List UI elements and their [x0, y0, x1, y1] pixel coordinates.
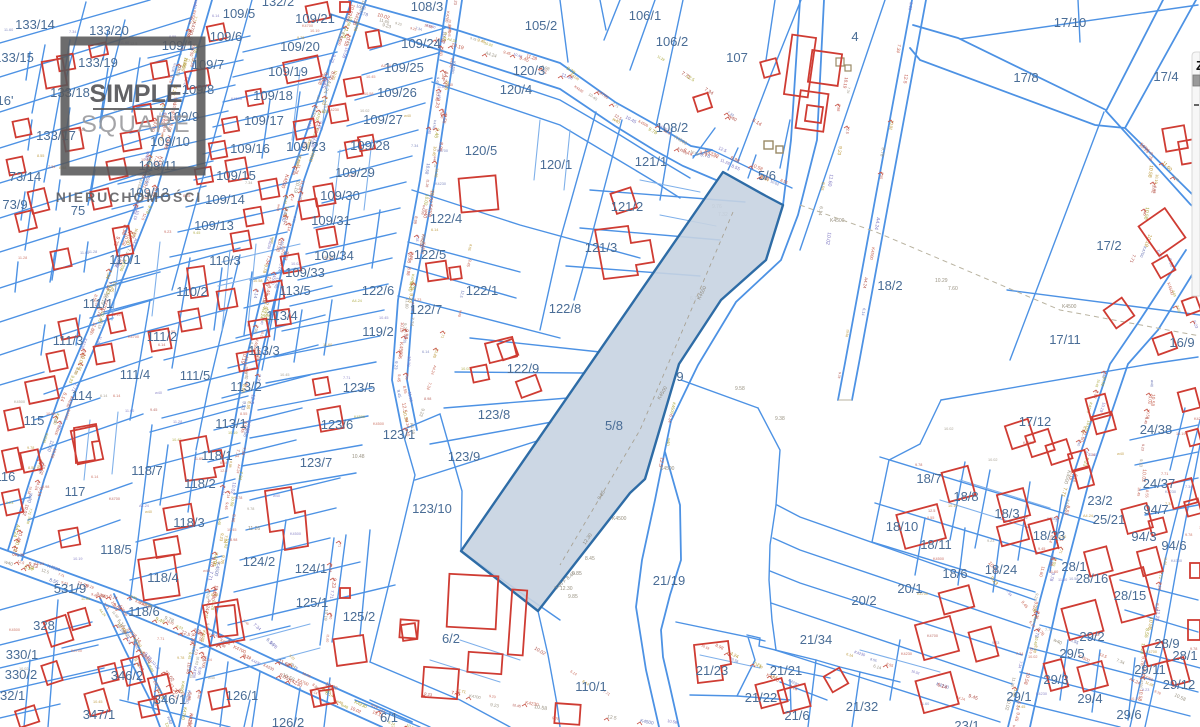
svg-text:K4500: K4500: [933, 557, 944, 561]
svg-text:109/25: 109/25: [384, 60, 424, 75]
svg-text:18/8: 18/8: [953, 489, 978, 504]
svg-text:10.45: 10.45: [227, 528, 237, 532]
svg-text:10.19: 10.19: [310, 29, 320, 33]
svg-text:7.71: 7.71: [329, 590, 335, 600]
svg-text:w40: w40: [1117, 452, 1124, 456]
svg-text:A4.24: A4.24: [34, 562, 44, 566]
svg-text:10.58: 10.58: [364, 92, 374, 96]
svg-text:120/4: 120/4: [500, 82, 533, 97]
svg-text:23/1: 23/1: [954, 718, 979, 727]
svg-text:K4700: K4700: [71, 649, 82, 653]
svg-text:330/2: 330/2: [5, 667, 38, 682]
svg-text:A4.24: A4.24: [1083, 514, 1093, 518]
svg-text:10.48: 10.48: [352, 454, 365, 460]
svg-text:9.23: 9.23: [393, 361, 399, 370]
svg-text:NIERUCHOMOŚCI: NIERUCHOMOŚCI: [56, 188, 203, 205]
svg-text:21/19: 21/19: [653, 573, 686, 588]
svg-text:118/1: 118/1: [201, 448, 233, 463]
svg-text:21/22: 21/22: [745, 690, 778, 705]
svg-text:116: 116: [0, 469, 15, 484]
svg-text:6.14: 6.14: [431, 228, 438, 232]
svg-text:113/1: 113/1: [215, 416, 247, 431]
svg-text:8.98: 8.98: [42, 485, 49, 489]
svg-text:117: 117: [65, 484, 86, 499]
svg-text:106/1: 106/1: [629, 8, 662, 23]
svg-text:5/8: 5/8: [605, 418, 623, 433]
svg-text:11.60: 11.60: [4, 28, 13, 32]
svg-text:6.14: 6.14: [100, 394, 107, 398]
svg-text:29/1: 29/1: [1006, 689, 1031, 704]
svg-text:10.19: 10.19: [948, 504, 958, 508]
svg-text:A4.24: A4.24: [202, 658, 212, 662]
svg-text:110/2: 110/2: [176, 284, 208, 299]
svg-text:94/3: 94/3: [1131, 529, 1156, 544]
svg-text:109/16: 109/16: [230, 141, 270, 156]
svg-text:133/15: 133/15: [0, 50, 34, 65]
svg-text:K4500: K4500: [660, 466, 675, 472]
svg-text:18/3: 18/3: [994, 506, 1019, 521]
svg-text:109/14: 109/14: [205, 192, 245, 207]
svg-text:125/1: 125/1: [296, 595, 329, 610]
svg-text:123/6: 123/6: [321, 417, 354, 432]
svg-text:109/13: 109/13: [194, 218, 234, 233]
svg-text:8.98: 8.98: [230, 538, 237, 542]
svg-text:4: 4: [851, 29, 858, 44]
svg-text:111/2: 111/2: [147, 329, 178, 344]
svg-text:10.58: 10.58: [253, 279, 263, 283]
svg-text:21/34: 21/34: [800, 632, 833, 647]
svg-text:9.23: 9.23: [987, 539, 994, 543]
svg-text:124/1: 124/1: [295, 561, 328, 576]
svg-text:9.23: 9.23: [164, 230, 171, 234]
svg-text:132/2: 132/2: [262, 0, 295, 9]
svg-text:9.23: 9.23: [1142, 688, 1149, 692]
svg-text:73/9: 73/9: [2, 197, 27, 212]
svg-text:110/1: 110/1: [109, 252, 141, 267]
svg-text:K4500: K4500: [9, 628, 20, 632]
svg-text:9.78: 9.78: [177, 656, 184, 660]
svg-text:K4500: K4500: [373, 422, 384, 426]
svg-text:17/12: 17/12: [1019, 414, 1052, 429]
svg-text:111/3: 111/3: [53, 333, 84, 348]
svg-text:8.55: 8.55: [37, 154, 44, 158]
svg-text:110/3: 110/3: [209, 253, 241, 268]
svg-text:110/1: 110/1: [575, 679, 607, 694]
svg-text:11.28: 11.28: [88, 250, 97, 254]
svg-text:328: 328: [33, 618, 55, 633]
svg-text:123/1: 123/1: [383, 427, 416, 442]
svg-text:9.23: 9.23: [6, 501, 13, 505]
svg-text:7.71: 7.71: [157, 637, 164, 641]
svg-text:18/24: 18/24: [985, 562, 1018, 577]
svg-text:w40: w40: [203, 569, 210, 573]
svg-text:10.45: 10.45: [379, 316, 389, 320]
svg-text:122/6: 122/6: [362, 283, 395, 298]
svg-text:12.5: 12.5: [928, 509, 935, 513]
svg-text:9.58: 9.58: [735, 386, 745, 392]
svg-text:29/5: 29/5: [1059, 646, 1084, 661]
svg-text:9.78: 9.78: [915, 463, 922, 467]
svg-text:9.45: 9.45: [396, 374, 402, 383]
svg-text:109/24: 109/24: [401, 36, 441, 51]
svg-text:6.14: 6.14: [422, 350, 429, 354]
svg-text:109/29: 109/29: [335, 165, 375, 180]
svg-text:24/37: 24/37: [1143, 476, 1176, 491]
svg-text:7.34: 7.34: [409, 317, 415, 327]
svg-text:94/7: 94/7: [1143, 502, 1168, 517]
svg-text:K4500: K4500: [231, 97, 242, 101]
svg-text:6.14: 6.14: [91, 475, 98, 479]
svg-text:94/6: 94/6: [1161, 538, 1186, 553]
svg-text:133/18: 133/18: [50, 85, 90, 100]
svg-text:122/8: 122/8: [549, 301, 582, 316]
svg-text:109/18: 109/18: [253, 88, 293, 103]
svg-text:28/16: 28/16: [1076, 571, 1109, 586]
svg-text:124/2: 124/2: [243, 554, 276, 569]
svg-text:w40: w40: [208, 676, 215, 680]
svg-text:18/10: 18/10: [886, 519, 919, 534]
svg-text:109/5: 109/5: [223, 6, 256, 21]
svg-text:10.45: 10.45: [280, 373, 290, 377]
svg-text:7.34: 7.34: [411, 144, 418, 148]
svg-text:332/1: 332/1: [0, 688, 25, 703]
svg-text:29/12: 29/12: [1163, 677, 1196, 692]
svg-text:K4230: K4230: [901, 652, 912, 656]
svg-text:6.14: 6.14: [440, 112, 447, 116]
svg-text:118/6: 118/6: [128, 604, 160, 619]
svg-text:73/14: 73/14: [9, 169, 42, 184]
svg-text:111/5: 111/5: [180, 368, 211, 383]
svg-text:118/3: 118/3: [173, 515, 205, 530]
svg-text:122/1: 122/1: [466, 283, 499, 298]
svg-text:109/6: 109/6: [210, 29, 243, 44]
svg-text:7.71: 7.71: [1045, 628, 1052, 632]
svg-text:121/3: 121/3: [585, 240, 618, 255]
svg-text:23/2: 23/2: [1087, 493, 1112, 508]
svg-text:9.38: 9.38: [775, 416, 785, 422]
svg-text:21/32: 21/32: [846, 699, 879, 714]
svg-text:A4.24: A4.24: [352, 299, 362, 303]
svg-text:109/15: 109/15: [216, 168, 256, 183]
svg-text:330/1: 330/1: [6, 647, 39, 662]
svg-text:113/5: 113/5: [279, 283, 311, 298]
svg-text:21/21: 21/21: [770, 663, 803, 678]
svg-text:10.02: 10.02: [461, 367, 471, 371]
svg-text:9: 9: [676, 369, 683, 384]
svg-text:123/8: 123/8: [478, 407, 511, 422]
svg-text:113/3: 113/3: [248, 343, 280, 358]
svg-text:K4500: K4500: [290, 532, 301, 536]
svg-text:109/23: 109/23: [286, 139, 326, 154]
svg-text:18/23: 18/23: [1033, 528, 1066, 543]
svg-text:9.45: 9.45: [1038, 547, 1045, 551]
svg-text:20/2: 20/2: [851, 593, 876, 608]
svg-text:K4700: K4700: [109, 497, 120, 501]
svg-text:111/4: 111/4: [120, 367, 151, 382]
svg-text:16/9: 16/9: [1169, 335, 1194, 350]
svg-text:10.19: 10.19: [228, 431, 238, 435]
svg-text:11.60: 11.60: [1049, 570, 1058, 574]
svg-text:7.34: 7.34: [1185, 485, 1192, 489]
svg-text:12.5: 12.5: [220, 469, 227, 473]
svg-text:w40: w40: [446, 83, 453, 87]
svg-text:75: 75: [71, 203, 85, 218]
svg-text:21/23: 21/23: [696, 663, 729, 678]
svg-text:6/2: 6/2: [442, 631, 460, 646]
svg-text:8.98: 8.98: [211, 593, 218, 597]
svg-text:10.45: 10.45: [366, 75, 376, 79]
svg-text:9.23: 9.23: [1141, 444, 1145, 451]
svg-text:106/2: 106/2: [656, 34, 689, 49]
svg-text:18/7: 18/7: [916, 471, 941, 486]
svg-text:K4500: K4500: [612, 516, 627, 522]
svg-text:18/6: 18/6: [942, 566, 967, 581]
svg-text:109/26: 109/26: [377, 85, 417, 100]
svg-text:122/4: 122/4: [430, 211, 463, 226]
svg-text:531/9: 531/9: [54, 581, 87, 596]
svg-text:8.55: 8.55: [322, 110, 329, 114]
svg-text:122/9: 122/9: [507, 361, 540, 376]
svg-text:118/2: 118/2: [184, 476, 216, 491]
svg-text:8.98: 8.98: [424, 397, 431, 401]
svg-text:11.60: 11.60: [1058, 578, 1067, 582]
svg-text:9.23: 9.23: [451, 0, 458, 1]
svg-text:10.45: 10.45: [1136, 487, 1141, 496]
svg-text:346/2: 346/2: [111, 668, 144, 683]
svg-text:115: 115: [24, 413, 45, 428]
svg-text:11.28: 11.28: [173, 420, 182, 424]
svg-text:9.78: 9.78: [1185, 533, 1192, 537]
svg-text:K4700: K4700: [1171, 559, 1182, 563]
svg-text:11.60: 11.60: [125, 409, 134, 413]
svg-text:SQUARE: SQUARE: [81, 111, 191, 138]
svg-text:7.60: 7.60: [948, 286, 958, 292]
svg-text:109/20: 109/20: [280, 39, 320, 54]
svg-text:17/11: 17/11: [1049, 332, 1081, 347]
svg-text:9.78: 9.78: [247, 507, 254, 511]
svg-text:10.29: 10.29: [935, 278, 948, 284]
svg-text:107: 107: [726, 50, 748, 65]
svg-text:Z: Z: [1196, 58, 1200, 73]
svg-text:109/19: 109/19: [268, 64, 308, 79]
svg-text:346/1: 346/1: [154, 692, 187, 707]
svg-text:123/7: 123/7: [300, 455, 333, 470]
svg-text:24/38: 24/38: [1140, 422, 1173, 437]
svg-text:17/4: 17/4: [1153, 69, 1178, 84]
svg-text:10.45: 10.45: [93, 700, 103, 704]
svg-text:120/3: 120/3: [513, 63, 546, 78]
svg-text:10.58: 10.58: [46, 412, 56, 416]
svg-text:121/1: 121/1: [635, 154, 668, 169]
svg-text:10.19: 10.19: [1130, 697, 1140, 701]
svg-text:K4500: K4500: [1062, 304, 1077, 310]
svg-text:18/2: 18/2: [877, 278, 902, 293]
svg-text:21/6: 21/6: [784, 708, 809, 723]
svg-text:133/14: 133/14: [15, 17, 55, 32]
svg-text:w40: w40: [145, 510, 152, 514]
svg-text:K4500: K4500: [354, 415, 365, 419]
svg-text:7.34: 7.34: [1016, 652, 1023, 656]
svg-text:17/8: 17/8: [1013, 70, 1038, 85]
svg-text:K4230: K4230: [435, 182, 446, 186]
svg-text:29/6: 29/6: [1116, 707, 1141, 722]
svg-text:16': 16': [0, 93, 13, 108]
svg-text:109/27: 109/27: [363, 112, 403, 127]
svg-text:126/1: 126/1: [226, 688, 259, 703]
svg-text:20/1: 20/1: [897, 581, 922, 596]
svg-text:120/1: 120/1: [540, 157, 573, 172]
svg-text:10.19: 10.19: [1176, 432, 1186, 436]
svg-text:123/5: 123/5: [343, 380, 376, 395]
svg-text:109/28: 109/28: [350, 138, 390, 153]
svg-text:113/4: 113/4: [266, 308, 298, 323]
svg-text:25/21: 25/21: [1093, 512, 1126, 527]
svg-text:109/17: 109/17: [244, 113, 284, 128]
svg-text:11.60: 11.60: [80, 251, 89, 255]
svg-text:9.23: 9.23: [1138, 459, 1144, 468]
svg-text:6/1: 6/1: [380, 710, 398, 725]
svg-text:5/6: 5/6: [758, 168, 776, 183]
svg-text:133/19: 133/19: [78, 55, 118, 70]
svg-text:17/10: 17/10: [1054, 15, 1087, 30]
svg-text:10.02: 10.02: [944, 427, 954, 431]
svg-text:9.45: 9.45: [1018, 705, 1025, 709]
svg-text:10.19: 10.19: [406, 356, 412, 367]
svg-text:11.60: 11.60: [437, 85, 446, 89]
svg-text:11.26: 11.26: [248, 526, 260, 532]
svg-text:11.28: 11.28: [15, 553, 24, 557]
svg-text:12.5: 12.5: [213, 561, 220, 565]
svg-text:109/21: 109/21: [295, 11, 335, 26]
svg-text:114: 114: [72, 388, 93, 403]
svg-text:6.14: 6.14: [113, 394, 120, 398]
svg-text:w40: w40: [404, 114, 411, 118]
svg-text:126/2: 126/2: [272, 715, 305, 727]
svg-text:120/5: 120/5: [465, 143, 498, 158]
svg-text:SIMPLE: SIMPLE: [89, 80, 182, 108]
svg-text:122/7: 122/7: [410, 302, 443, 317]
svg-text:123/10: 123/10: [412, 501, 452, 516]
svg-text:8.55: 8.55: [28, 466, 35, 470]
svg-text:347/1: 347/1: [83, 707, 116, 722]
svg-text:118/5: 118/5: [100, 542, 132, 557]
svg-text:6.14: 6.14: [212, 14, 219, 18]
svg-text:10.19: 10.19: [73, 557, 83, 561]
svg-text:28/15: 28/15: [1114, 588, 1147, 603]
svg-text:133/20: 133/20: [89, 23, 129, 38]
svg-text:K4700: K4700: [128, 335, 139, 339]
svg-text:133/17: 133/17: [36, 128, 76, 143]
svg-text:108/3: 108/3: [411, 0, 444, 14]
svg-text:K4500: K4500: [830, 218, 845, 224]
svg-text:7.34: 7.34: [48, 165, 55, 169]
svg-text:8.55: 8.55: [1144, 490, 1150, 498]
svg-text:122/5: 122/5: [414, 247, 447, 262]
svg-text:17/2: 17/2: [1096, 238, 1121, 253]
svg-text:11.28: 11.28: [18, 256, 27, 260]
svg-text:29/3: 29/3: [1043, 672, 1068, 687]
svg-text:w40: w40: [273, 494, 280, 498]
svg-text:118/4: 118/4: [147, 570, 179, 585]
svg-text:10.02: 10.02: [1028, 655, 1038, 659]
svg-text:29/4: 29/4: [1077, 691, 1102, 706]
svg-text:11.60: 11.60: [81, 597, 90, 601]
svg-text:109/34: 109/34: [314, 248, 354, 263]
svg-text:9.85: 9.85: [568, 594, 578, 600]
svg-text:A4.24: A4.24: [139, 504, 149, 508]
svg-text:K4230: K4230: [1036, 692, 1047, 696]
svg-text:108/2: 108/2: [656, 120, 689, 135]
svg-text:118/7: 118/7: [131, 463, 163, 478]
svg-text:w40: w40: [155, 391, 162, 395]
svg-text:K4700: K4700: [927, 634, 938, 638]
svg-text:8.55: 8.55: [927, 516, 934, 520]
svg-text:10.58: 10.58: [1149, 394, 1156, 407]
svg-text:K4700: K4700: [437, 149, 448, 153]
svg-text:109/30: 109/30: [320, 188, 360, 203]
svg-text:105/2: 105/2: [525, 18, 558, 33]
svg-text:113/2: 113/2: [230, 379, 262, 394]
svg-text:9.78: 9.78: [235, 496, 242, 500]
svg-text:11.60: 11.60: [1088, 453, 1097, 457]
svg-text:125/2: 125/2: [343, 609, 376, 624]
svg-text:9.45: 9.45: [150, 408, 157, 412]
svg-text:29/11: 29/11: [1134, 662, 1166, 677]
svg-text:121/2: 121/2: [611, 199, 644, 214]
svg-text:18/11: 18/11: [920, 537, 952, 552]
svg-text:7.34: 7.34: [69, 30, 76, 34]
svg-text:K4230: K4230: [1194, 417, 1200, 421]
svg-text:111/1: 111/1: [83, 296, 114, 311]
svg-text:K4500: K4500: [14, 400, 25, 404]
svg-text:109/31: 109/31: [311, 213, 351, 228]
svg-text:119/2: 119/2: [362, 324, 394, 339]
svg-text:11.60: 11.60: [323, 343, 332, 347]
svg-text:123/9: 123/9: [448, 449, 481, 464]
svg-text:109/33: 109/33: [285, 265, 325, 280]
svg-text:10.02: 10.02: [988, 458, 998, 462]
svg-text:29/2: 29/2: [1079, 629, 1104, 644]
svg-text:8.45: 8.45: [585, 556, 595, 562]
svg-text:w40: w40: [1150, 380, 1154, 387]
svg-text:28/1: 28/1: [1172, 648, 1197, 663]
